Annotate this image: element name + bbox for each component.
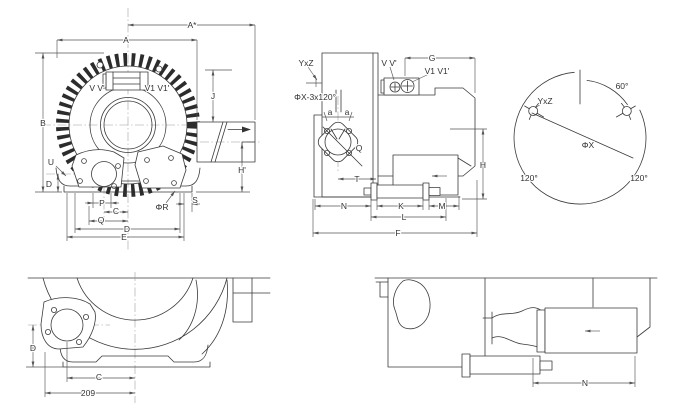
inlet-flange-left bbox=[72, 150, 124, 187]
blower-dimension-drawing: A* A B U D J H' V V' V1 V1' P C Q D E ΦR… bbox=[0, 0, 697, 415]
dim-label-d: D bbox=[30, 343, 36, 353]
port-label-v: V V' bbox=[381, 58, 397, 68]
bolt-circle-view: 60° YxZ ΦX 120° 120° bbox=[514, 70, 648, 204]
dim-label-n: N bbox=[341, 201, 347, 211]
dim-label-209: 209 bbox=[81, 388, 95, 398]
tube-stub-left bbox=[364, 188, 371, 195]
leader-yxz bbox=[308, 67, 317, 80]
dim-label-p: P bbox=[99, 198, 105, 208]
dim-label-phi-r: ΦR bbox=[156, 202, 169, 212]
yxz-target-tick bbox=[306, 79, 322, 87]
dim-label-e: E bbox=[121, 232, 127, 242]
side-view: YxZ ΦX-3x120° V V' V1 V1' G a a Q T N K … bbox=[294, 53, 487, 238]
dim-label-q: Q bbox=[356, 143, 363, 153]
dim-label-k: K bbox=[398, 201, 404, 211]
bottom-front-view: D C 209 bbox=[26, 272, 270, 403]
dim-label-q: Q bbox=[98, 215, 105, 225]
extension-line bbox=[371, 198, 446, 221]
dim-label-h: H bbox=[480, 160, 486, 170]
dim-label-b: B bbox=[40, 118, 46, 128]
bolt-hole bbox=[529, 107, 538, 116]
silencer-tube bbox=[470, 356, 540, 374]
dim-label-a-star: A* bbox=[188, 20, 198, 30]
eyebolt-left bbox=[97, 62, 103, 68]
dim-line-phix bbox=[532, 113, 633, 158]
inlet-flange-right bbox=[135, 146, 186, 188]
drawing-canvas: A* A B U D J H' V V' V1 V1' P C Q D E ΦR… bbox=[0, 0, 697, 415]
port-label-v: V V' bbox=[89, 83, 105, 93]
front-view: A* A B U D J H' V V' V1 V1' P C Q D E ΦR… bbox=[35, 8, 262, 250]
terminal-box-flange bbox=[381, 80, 384, 93]
volute-curve bbox=[202, 280, 228, 354]
angle-label-120-right: 120° bbox=[630, 173, 648, 183]
dim-label-h-prime: H' bbox=[238, 165, 246, 175]
dim-label-phix: ΦX bbox=[582, 140, 595, 150]
left-cover-strip bbox=[314, 115, 322, 197]
tube-flange-left bbox=[371, 183, 377, 200]
dim-label-g: G bbox=[429, 53, 436, 63]
dim-label-n: N bbox=[582, 378, 588, 388]
outlet-stub bbox=[233, 278, 270, 322]
dim-label-a-right: a bbox=[345, 107, 350, 117]
dim-label-t: T bbox=[354, 174, 359, 184]
dim-label-a-left: a bbox=[328, 107, 333, 117]
angle-label-60: 60° bbox=[616, 81, 629, 91]
tube-flange-right bbox=[423, 183, 429, 200]
angle-label-120-left: 120° bbox=[520, 173, 538, 183]
silencer-tube bbox=[377, 185, 423, 198]
pipe-bracket bbox=[483, 312, 492, 344]
base-line bbox=[63, 362, 210, 367]
foot-profile bbox=[60, 345, 208, 362]
tube-flange bbox=[462, 354, 470, 377]
box-chamfer bbox=[458, 158, 471, 166]
port-label-v1: V1 V1' bbox=[145, 83, 170, 93]
tapped-hole-detail bbox=[336, 90, 341, 112]
terminal-box bbox=[106, 72, 148, 90]
tube-stub bbox=[540, 361, 552, 370]
silencer-box bbox=[545, 308, 637, 353]
bolt-hole bbox=[622, 107, 631, 116]
port-label-v1: V1 V1' bbox=[425, 66, 450, 76]
bottom-side-view: N bbox=[375, 278, 657, 388]
dim-label-l: L bbox=[402, 212, 407, 222]
dim-label-u: U bbox=[48, 157, 54, 167]
label-yxz: YxZ bbox=[298, 58, 313, 68]
pipe-curve-lower bbox=[492, 337, 542, 349]
box-flange-strip bbox=[537, 310, 545, 352]
tube-stub-right bbox=[429, 188, 440, 196]
dim-label-s: S bbox=[192, 195, 198, 205]
dim-label-j: J bbox=[211, 91, 215, 101]
dim-label-c: C bbox=[96, 372, 102, 382]
dim-label-f: F bbox=[395, 228, 400, 238]
dim-label-d-side: D bbox=[46, 179, 52, 189]
dim-label-a: A bbox=[123, 35, 129, 45]
eyebolt-right bbox=[156, 66, 162, 72]
dim-label-m: M bbox=[438, 201, 445, 211]
casting-recess bbox=[393, 280, 430, 329]
housing-body bbox=[322, 53, 378, 197]
label-phix-holes: ΦX-3x120° bbox=[294, 92, 336, 102]
dim-label-c: C bbox=[113, 206, 119, 216]
leader-u bbox=[56, 166, 66, 176]
label-yxz: YxZ bbox=[537, 96, 552, 106]
right-outline bbox=[637, 278, 650, 337]
pipe-curve-upper bbox=[492, 308, 542, 318]
edge-notch bbox=[376, 282, 388, 297]
